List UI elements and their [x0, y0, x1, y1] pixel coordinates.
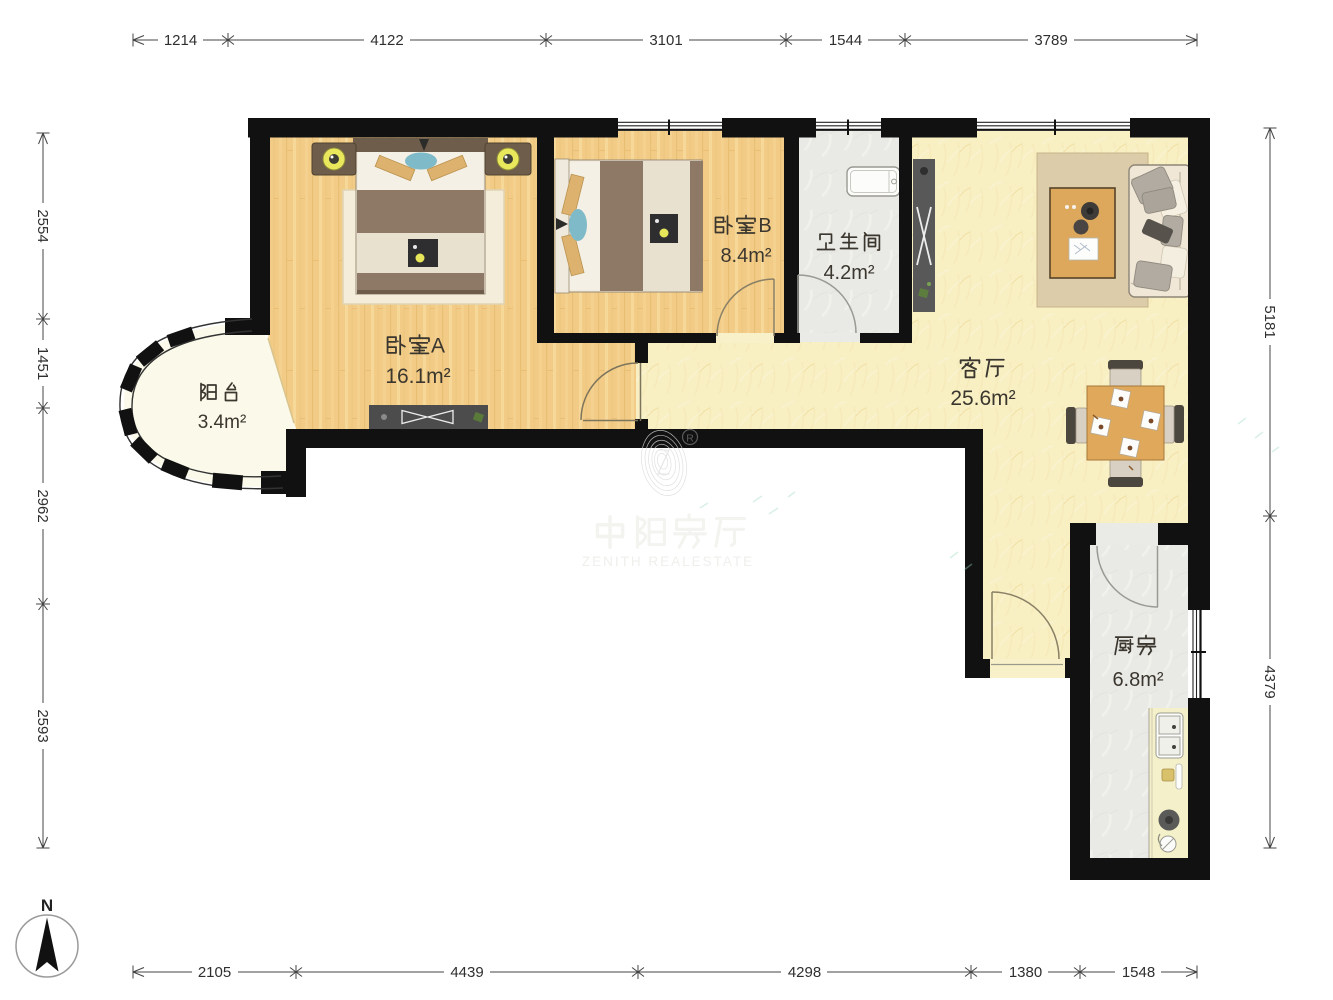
svg-text:4439: 4439 — [450, 964, 483, 981]
svg-text:16.1m²: 16.1m² — [385, 365, 450, 388]
svg-text:1380: 1380 — [1009, 964, 1042, 981]
svg-text:A: A — [431, 335, 445, 358]
svg-text:R: R — [686, 433, 694, 445]
svg-text:2593: 2593 — [34, 709, 51, 742]
svg-text:3789: 3789 — [1034, 32, 1067, 49]
svg-text:3.4m²: 3.4m² — [198, 412, 247, 433]
svg-text:5181: 5181 — [1261, 305, 1278, 338]
svg-text:6.8m²: 6.8m² — [1112, 669, 1163, 691]
svg-text:2105: 2105 — [198, 964, 231, 981]
svg-text:2554: 2554 — [34, 209, 51, 242]
svg-text:4298: 4298 — [788, 964, 821, 981]
svg-text:4.2m²: 4.2m² — [823, 262, 874, 284]
svg-text:1548: 1548 — [1122, 964, 1155, 981]
svg-text:8.4m²: 8.4m² — [720, 245, 771, 267]
svg-text:ZENITH REALESTATE: ZENITH REALESTATE — [582, 554, 754, 569]
svg-text:25.6m²: 25.6m² — [950, 387, 1015, 410]
svg-text:2962: 2962 — [34, 489, 51, 522]
svg-text:N: N — [41, 896, 53, 915]
svg-text:B: B — [758, 215, 771, 237]
svg-text:1544: 1544 — [829, 32, 862, 49]
svg-text:3101: 3101 — [649, 32, 682, 49]
svg-text:1451: 1451 — [34, 347, 51, 380]
svg-text:4122: 4122 — [370, 32, 403, 49]
svg-text:4379: 4379 — [1261, 665, 1278, 698]
svg-text:1214: 1214 — [164, 32, 197, 49]
